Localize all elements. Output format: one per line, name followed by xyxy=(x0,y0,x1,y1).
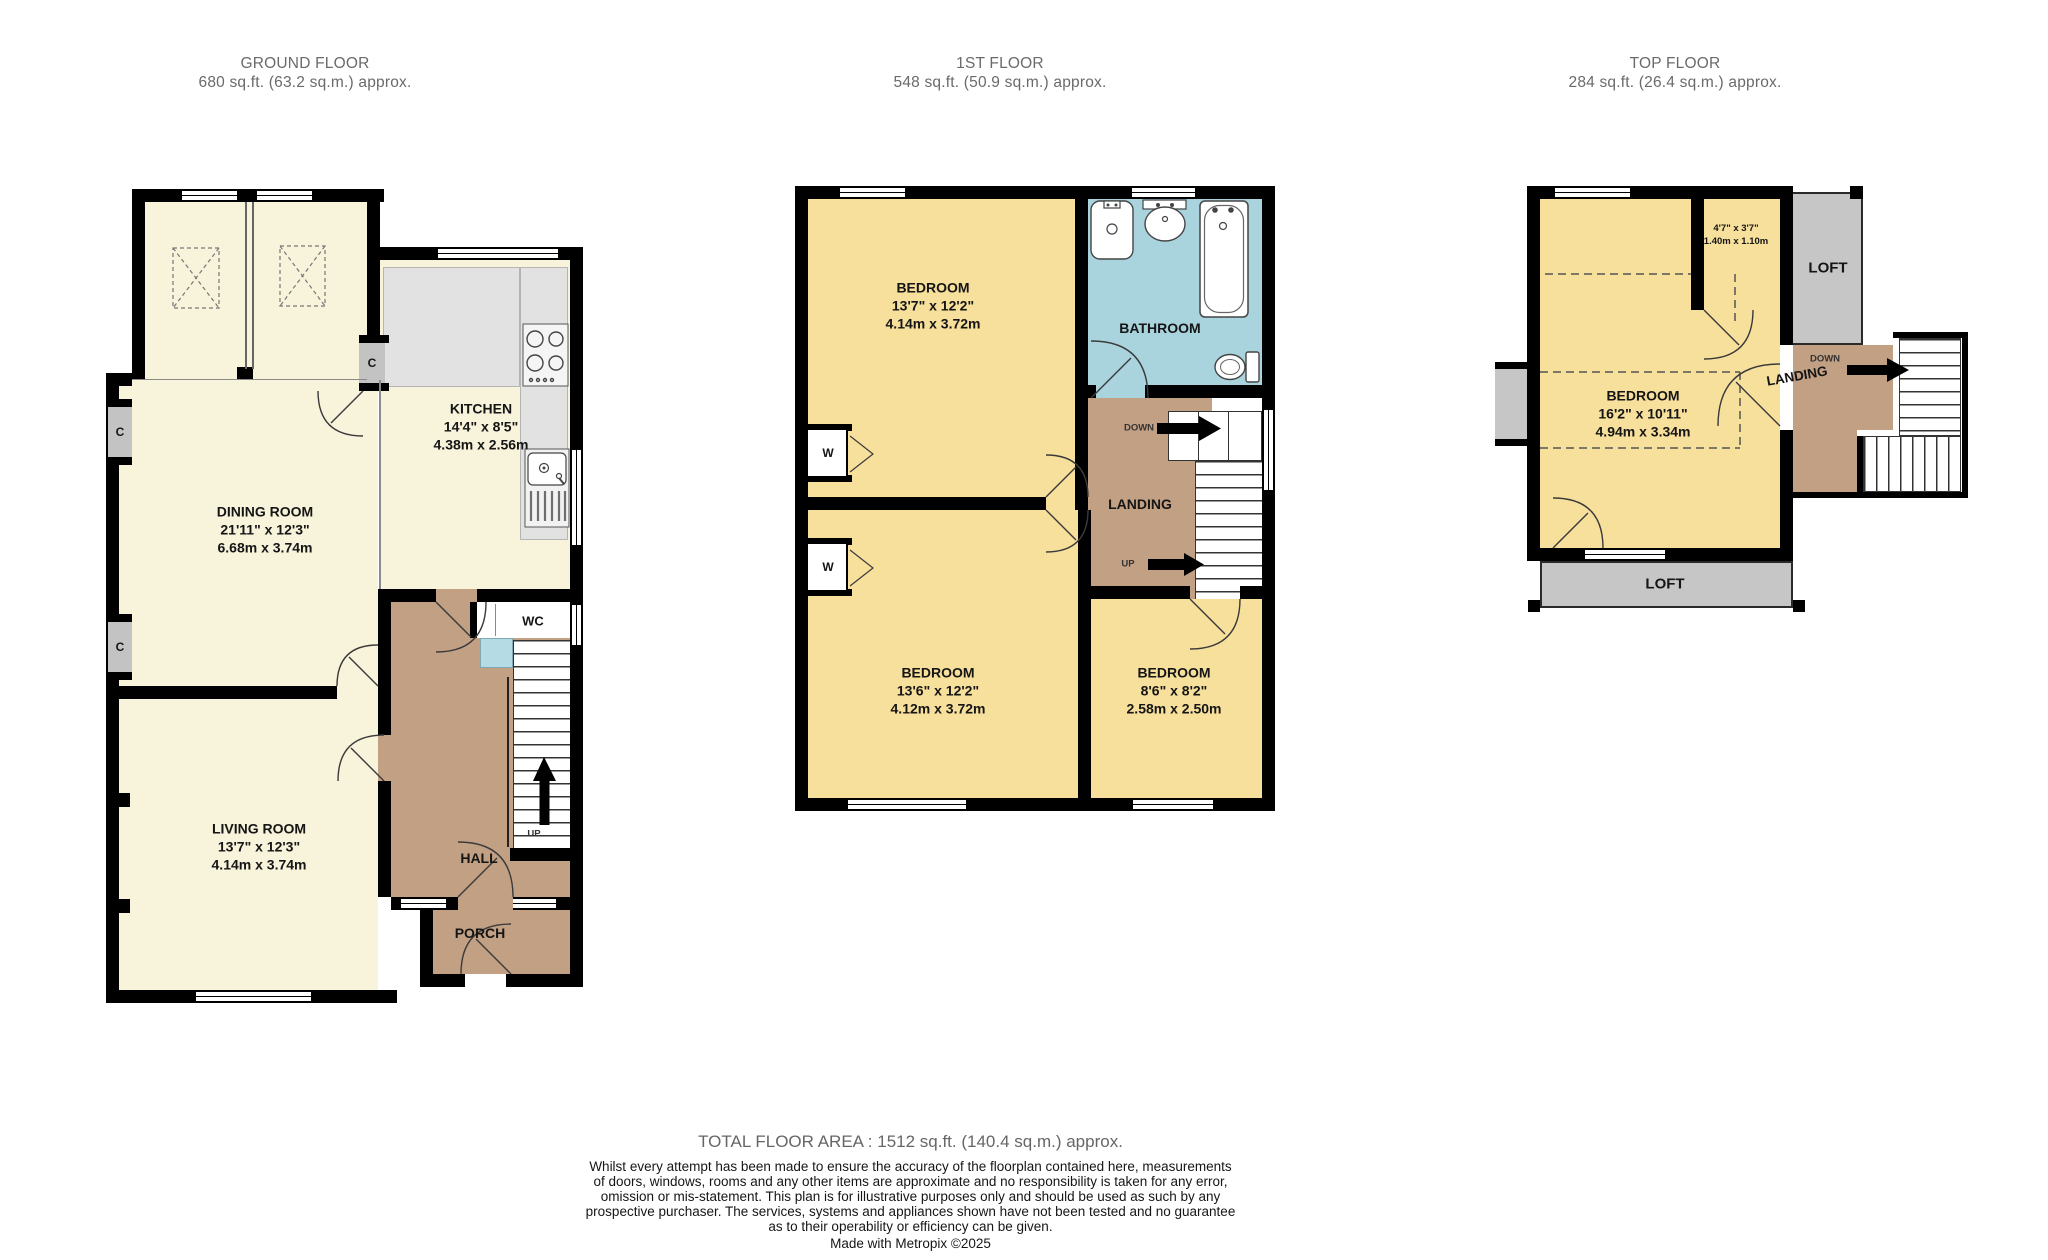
wall xyxy=(506,974,583,987)
window xyxy=(1555,186,1630,199)
first-floor-title: 1ST FLOOR xyxy=(800,54,1200,73)
top-landing xyxy=(1793,345,1893,430)
staircase-lower xyxy=(1863,436,1961,492)
wall xyxy=(1691,199,1704,310)
top-landing-lower xyxy=(1793,430,1857,492)
up-label: UP xyxy=(1121,559,1134,570)
wall xyxy=(106,373,119,1003)
wall-nub xyxy=(1528,600,1540,612)
top-floor-plan: BEDROOM 16'2" x 10'11" 4.94m x 3.34m 4'7… xyxy=(1495,186,2005,646)
wall-nub xyxy=(1850,186,1863,199)
wall xyxy=(470,602,477,638)
wall xyxy=(1075,199,1088,398)
window xyxy=(1132,186,1195,199)
first-floor-plan: BEDROOM 13'7" x 12'2" 4.14m x 3.72m BATH… xyxy=(795,186,1275,811)
stair-winders xyxy=(1168,411,1262,461)
living-room-label: LIVING ROOM 13'7" x 12'3" 4.14m x 3.74m xyxy=(212,820,307,875)
wall xyxy=(1088,385,1096,398)
store-size-label: 4'7" x 3'7" 1.40m x 1.10m xyxy=(1704,223,1768,249)
stair-handrail xyxy=(507,677,509,847)
wall xyxy=(556,897,583,910)
wall xyxy=(106,990,196,1003)
kitchen-label: KITCHEN 14'4" x 8'5" 4.38m x 2.56m xyxy=(434,400,529,455)
window xyxy=(513,897,556,910)
top-floor-title: TOP FLOOR xyxy=(1475,54,1875,73)
first-floor-area: 548 sq.ft. (50.9 sq.m.) approx. xyxy=(800,73,1200,92)
dining-room-label: DINING ROOM 21'11" x 12'3" 6.68m x 3.74m xyxy=(217,503,313,558)
disclaimer-line: omission or mis-statement. This plan is … xyxy=(548,1189,1273,1204)
wardrobe-label: W xyxy=(822,560,833,574)
wc-label: WC xyxy=(522,614,544,629)
closet-label: C xyxy=(116,640,125,654)
eaves-store xyxy=(1495,368,1527,440)
wall xyxy=(420,974,465,987)
bathroom xyxy=(1088,199,1262,398)
wall xyxy=(1091,586,1190,599)
wall xyxy=(1078,510,1091,798)
disclaimer-line: of doors, windows, rooms and any other i… xyxy=(548,1174,1273,1189)
wall-nub xyxy=(119,793,130,807)
wall xyxy=(1893,332,1968,338)
staircase xyxy=(1195,461,1262,599)
loft-lower-label: LOFT xyxy=(1645,576,1684,593)
wc-basin-area xyxy=(480,638,513,668)
window xyxy=(196,990,311,1003)
loft-upper-label: LOFT xyxy=(1808,260,1847,277)
window xyxy=(848,798,966,811)
wall xyxy=(1262,186,1275,811)
wall xyxy=(378,589,391,735)
bedroom-2-label: BEDROOM 13'6" x 12'2" 4.12m x 3.72m xyxy=(891,664,986,719)
window xyxy=(1133,798,1213,811)
bedroom-2 xyxy=(808,510,1078,798)
down-label: DOWN xyxy=(1810,354,1840,365)
closet-label: C xyxy=(116,425,125,439)
wall xyxy=(132,189,145,379)
top-floor-header: TOP FLOOR 284 sq.ft. (26.4 sq.m.) approx… xyxy=(1475,54,1875,93)
kitchen-counter xyxy=(383,267,520,387)
staircase-upper xyxy=(1899,338,1961,436)
top-bedroom xyxy=(1540,199,1780,548)
wall xyxy=(510,848,570,861)
window xyxy=(257,189,312,202)
garden-room xyxy=(132,202,367,380)
wall xyxy=(391,897,401,910)
wall xyxy=(1527,186,1540,561)
ground-floor-plan: DINING ROOM 21'11" x 12'3" 6.68m x 3.74m… xyxy=(106,185,586,1010)
bedroom-1 xyxy=(808,199,1075,497)
metropix-credit: Made with Metropix ©2025 xyxy=(548,1236,1273,1251)
closet-label: C xyxy=(368,356,377,370)
wall xyxy=(311,990,397,1003)
wall xyxy=(380,247,438,260)
window xyxy=(438,247,558,260)
wall xyxy=(378,781,391,897)
window xyxy=(1585,548,1665,561)
disclaimer-line: prospective purchaser. The services, sys… xyxy=(548,1204,1273,1219)
wall xyxy=(1075,398,1088,510)
landing-label: LANDING xyxy=(1108,496,1172,512)
bedroom-3-label: BEDROOM 8'6" x 8'2" 2.58m x 2.50m xyxy=(1127,664,1222,719)
down-label: DOWN xyxy=(1124,423,1154,434)
ground-floor-title: GROUND FLOOR xyxy=(105,54,505,73)
wall xyxy=(446,897,458,910)
total-floor-area: TOTAL FLOOR AREA : 1512 sq.ft. (140.4 sq… xyxy=(548,1132,1273,1152)
wardrobe-label: W xyxy=(822,446,833,460)
top-floor-area: 284 sq.ft. (26.4 sq.m.) approx. xyxy=(1475,73,1875,92)
bathroom-label: BATHROOM xyxy=(1119,320,1200,336)
wall xyxy=(1780,186,1793,345)
floorplan-canvas: GROUND FLOOR 680 sq.ft. (63.2 sq.m.) app… xyxy=(0,0,2048,1260)
bedroom-1-label: BEDROOM 13'7" x 12'2" 4.14m x 3.72m xyxy=(886,279,981,334)
staircase-up xyxy=(513,640,570,848)
wall xyxy=(1240,586,1262,599)
porch-label: PORCH xyxy=(455,925,506,941)
wall xyxy=(237,189,257,202)
disclaimer-line: Whilst every attempt has been made to en… xyxy=(548,1159,1273,1174)
wall xyxy=(1780,492,1968,498)
wall xyxy=(795,186,808,811)
wall xyxy=(1857,436,1863,498)
window xyxy=(182,189,237,202)
ground-floor-area: 680 sq.ft. (63.2 sq.m.) approx. xyxy=(105,73,505,92)
porch xyxy=(433,910,583,974)
top-bedroom-label: BEDROOM 16'2" x 10'11" 4.94m x 3.34m xyxy=(1596,387,1691,442)
window xyxy=(401,897,446,910)
disclaimer-line: as to their operability or efficiency ca… xyxy=(548,1219,1273,1234)
wall xyxy=(1145,385,1262,398)
window xyxy=(840,186,905,199)
wall xyxy=(477,589,570,602)
window xyxy=(570,450,583,545)
wall xyxy=(119,686,337,699)
wall xyxy=(1962,332,1968,498)
wall xyxy=(367,189,380,335)
hall-label: HALL xyxy=(460,850,497,866)
ground-floor-header: GROUND FLOOR 680 sq.ft. (63.2 sq.m.) app… xyxy=(105,54,505,93)
window xyxy=(570,605,583,645)
wall xyxy=(808,497,1046,510)
wall-nub xyxy=(119,899,130,913)
footer: TOTAL FLOOR AREA : 1512 sq.ft. (140.4 sq… xyxy=(548,1132,1273,1251)
wall-nub xyxy=(1793,600,1805,612)
up-label: UP xyxy=(527,829,540,840)
window xyxy=(1262,410,1275,490)
first-floor-header: 1ST FLOOR 548 sq.ft. (50.9 sq.m.) approx… xyxy=(800,54,1200,93)
